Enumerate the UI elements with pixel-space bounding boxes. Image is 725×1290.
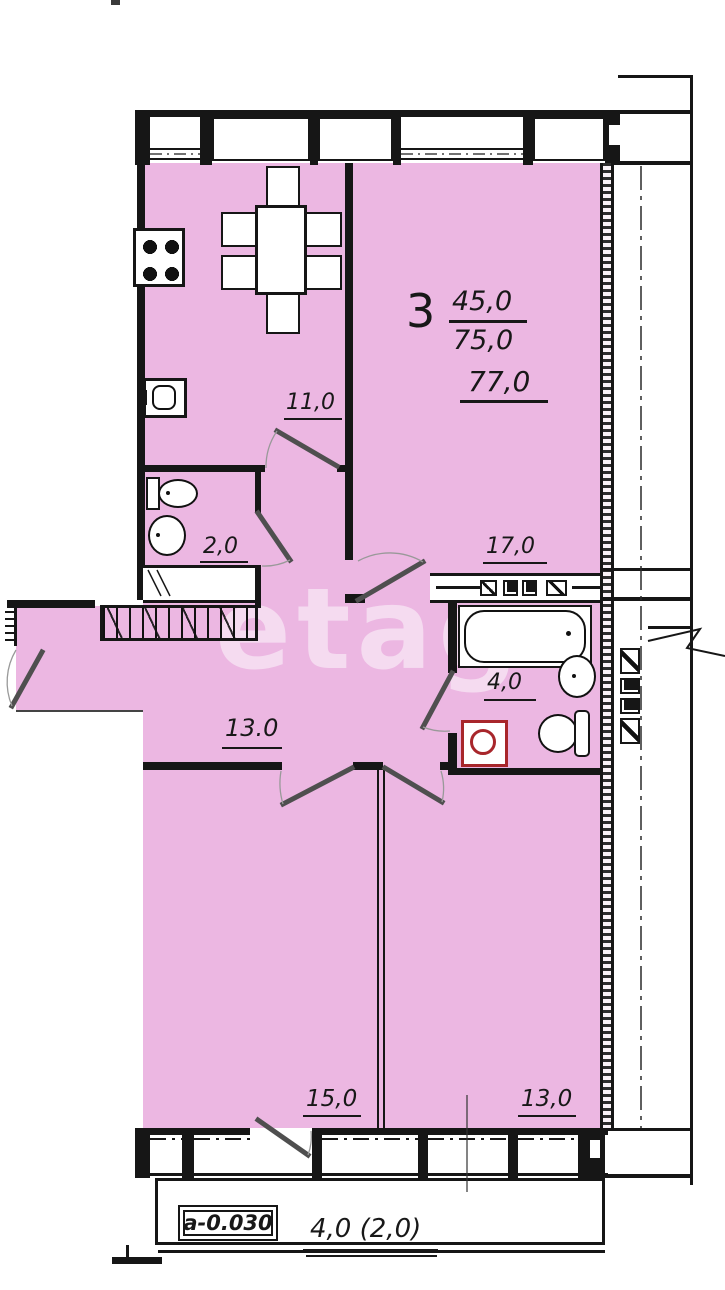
wall-pier <box>135 1128 150 1178</box>
bathroom-area-label: 4,0 <box>487 670 522 695</box>
bedroom-divider-wall <box>377 770 379 1128</box>
kitchen-south-wall <box>143 465 265 472</box>
living-area-value: 45,0 <box>452 286 512 317</box>
glazed-wall <box>603 163 611 1128</box>
total-area-value: 75,0 <box>453 325 513 356</box>
kitchen-faucet-icon <box>138 390 147 405</box>
vent-duct-icon <box>480 580 497 596</box>
toilet-south-wall <box>143 565 261 603</box>
window-sill <box>401 158 523 160</box>
living-area-label: 17,0 <box>486 534 535 559</box>
stove-icon <box>133 228 185 287</box>
kitchen-area-label: 11,0 <box>286 390 335 415</box>
vent-duct-icon <box>546 580 567 596</box>
door-arc <box>7 650 16 706</box>
level-mark-box: а-0.030 <box>178 1205 278 1241</box>
apartment-rooms-count: 3 <box>406 284 435 338</box>
balcony-door-opening <box>250 1128 312 1135</box>
floor-plan-canvas: etagi <box>0 0 725 1290</box>
left-exterior-wall <box>137 110 145 600</box>
bathroom-south-wall <box>448 768 608 775</box>
balcony-area-label: 4,0 (2,0) <box>310 1214 421 1244</box>
bedroom-right-area-label: 13,0 <box>521 1086 572 1112</box>
wall-pier <box>508 1128 518 1178</box>
overall-area-value: 77,0 <box>468 365 530 398</box>
bath-wc-bowl <box>538 714 578 753</box>
window-bay <box>533 117 605 161</box>
hallway-area-label: 13.0 <box>225 714 278 742</box>
window-sill <box>401 148 523 150</box>
bedroom-left-area-label: 15,0 <box>306 1086 357 1112</box>
level-mark-label: а-0.030 <box>183 1211 272 1235</box>
wall-pier <box>393 110 401 165</box>
kitchen-living-divider <box>345 163 353 560</box>
scan-artifact <box>111 0 120 5</box>
vent-duct-icon <box>620 698 640 714</box>
dining-chair <box>305 212 342 247</box>
wall-pier <box>200 110 212 165</box>
bathtub-inner <box>464 610 586 663</box>
bath-basin <box>558 655 596 698</box>
vent-duct-icon <box>620 678 640 694</box>
wall-pier <box>418 1128 428 1178</box>
dining-chair <box>266 166 300 207</box>
vestibule-top-wall <box>7 600 95 608</box>
dining-chair <box>305 255 342 290</box>
dining-chair <box>221 212 258 247</box>
bedrooms-area <box>143 768 608 1128</box>
wardrobe <box>100 605 258 641</box>
window-sill <box>150 158 200 160</box>
wc-bowl <box>158 479 198 508</box>
vent-duct-icon <box>503 580 518 596</box>
kitchen-room <box>143 163 353 472</box>
bathroom-west-wall <box>448 603 457 673</box>
vent-duct-icon <box>620 648 640 674</box>
dining-chair <box>221 255 258 290</box>
wall-pier <box>523 110 533 165</box>
wall-pier <box>310 110 318 165</box>
wall-pier <box>312 1128 322 1178</box>
break-line-icon <box>648 629 725 656</box>
window-sill <box>150 148 200 150</box>
toilet-east-wall <box>255 472 261 513</box>
toilet-area-label: 2,0 <box>203 534 238 559</box>
toilet-basin <box>148 515 186 556</box>
vent-duct-icon <box>620 718 640 744</box>
window-bay <box>212 117 310 161</box>
wall-pier <box>182 1128 194 1178</box>
right-outer-wall <box>690 75 693 1185</box>
bath-wc-tank <box>574 710 590 757</box>
dining-chair <box>266 293 300 334</box>
dining-table <box>255 205 307 295</box>
kitchen-sink-bowl <box>152 385 176 410</box>
window-bay <box>318 117 393 161</box>
vent-duct-icon <box>522 580 537 596</box>
